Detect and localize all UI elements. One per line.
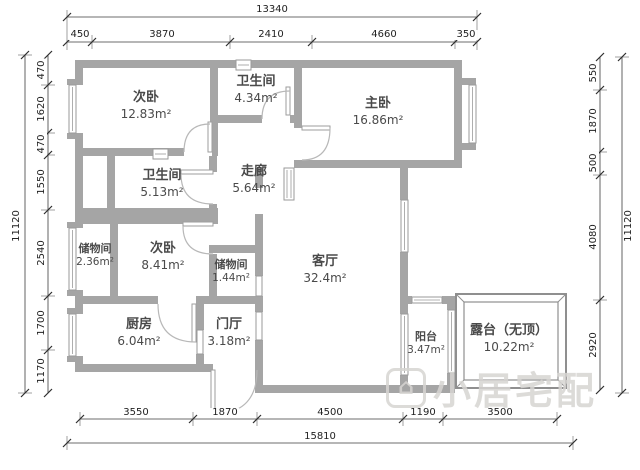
dim-left-total: 11120 <box>12 208 22 244</box>
room-area: 12.83m² <box>121 107 172 123</box>
room-area: 3.18m² <box>207 334 250 350</box>
room-label-balcony: 阳台 3.47m² <box>407 330 445 358</box>
room-label-storage-mid: 储物间 1.44m² <box>212 258 250 286</box>
floor-plan-canvas: 13340 450 3870 2410 4660 350 3550 1870 4… <box>0 0 640 470</box>
dim-top-seg: 2410 <box>256 30 285 40</box>
room-name: 门厅 <box>207 317 250 334</box>
dim-left-seg: 2540 <box>37 238 47 267</box>
dim-left-seg: 1170 <box>37 356 47 385</box>
dim-right-seg: 1870 <box>589 106 599 135</box>
dim-bottom-seg: 4500 <box>315 408 344 418</box>
room-name: 卫生间 <box>140 168 183 185</box>
room-name: 储物间 <box>76 242 114 256</box>
room-label-kitchen: 厨房 6.04m² <box>117 317 160 349</box>
dim-left-seg: 1700 <box>37 308 47 337</box>
room-name: 次卧 <box>121 90 172 107</box>
room-area: 5.13m² <box>140 185 183 201</box>
dim-top-total: 13340 <box>254 5 290 15</box>
dim-left-seg: 470 <box>37 58 47 81</box>
dim-right-seg: 4080 <box>589 222 599 251</box>
dim-top-seg: 3870 <box>147 30 176 40</box>
room-name: 卫生间 <box>234 74 277 91</box>
room-label-second-bedroom-mid: 次卧 8.41m² <box>141 241 184 273</box>
room-label-entry-hall: 门厅 3.18m² <box>207 317 250 349</box>
dim-bottom-seg: 3550 <box>121 408 150 418</box>
dim-bottom-total: 15810 <box>302 432 338 442</box>
room-area: 16.86m² <box>353 113 404 129</box>
room-label-bathroom-mid: 卫生间 5.13m² <box>140 168 183 200</box>
dim-right-seg: 500 <box>589 151 599 174</box>
room-area: 1.44m² <box>212 272 250 286</box>
room-area: 3.47m² <box>407 344 445 358</box>
room-area: 2.36m² <box>76 256 114 270</box>
room-name: 储物间 <box>212 258 250 272</box>
room-area: 8.41m² <box>141 258 184 274</box>
room-name: 厨房 <box>117 317 160 334</box>
dim-right-seg: 2920 <box>589 330 599 359</box>
room-area: 10.22m² <box>470 340 548 356</box>
room-name: 走廊 <box>232 164 275 181</box>
room-name: 主卧 <box>353 96 404 113</box>
room-area: 4.34m² <box>234 91 277 107</box>
dim-right-seg: 550 <box>589 61 599 84</box>
room-label-second-bedroom-top: 次卧 12.83m² <box>121 90 172 122</box>
dim-left-seg: 1550 <box>37 167 47 196</box>
dim-left-seg: 470 <box>37 132 47 155</box>
room-label-master-bedroom: 主卧 16.86m² <box>353 96 404 128</box>
dim-top-seg: 4660 <box>369 30 398 40</box>
room-label-corridor: 走廊 5.64m² <box>232 164 275 196</box>
room-name: 次卧 <box>141 241 184 258</box>
dim-bottom-seg: 3500 <box>485 408 514 418</box>
dim-right-total: 11120 <box>624 208 634 244</box>
room-area: 32.4m² <box>303 271 346 287</box>
room-name: 露台（无顶） <box>470 323 548 340</box>
dim-bottom-seg: 1870 <box>210 408 239 418</box>
room-area: 6.04m² <box>117 334 160 350</box>
room-label-living-room: 客厅 32.4m² <box>303 254 346 286</box>
room-name: 客厅 <box>303 254 346 271</box>
room-name: 阳台 <box>407 330 445 344</box>
room-label-terrace: 露台（无顶） 10.22m² <box>470 323 548 355</box>
dim-top-seg: 350 <box>454 30 477 40</box>
dimension-extension-lines <box>18 10 629 450</box>
dim-left-seg: 1620 <box>37 94 47 123</box>
room-label-bathroom-top: 卫生间 4.34m² <box>234 74 277 106</box>
room-area: 5.64m² <box>232 181 275 197</box>
dim-bottom-seg: 1190 <box>408 408 437 418</box>
floorplan-drawing <box>0 0 640 470</box>
room-label-storage-left: 储物间 2.36m² <box>76 242 114 270</box>
dim-top-seg: 450 <box>68 30 91 40</box>
